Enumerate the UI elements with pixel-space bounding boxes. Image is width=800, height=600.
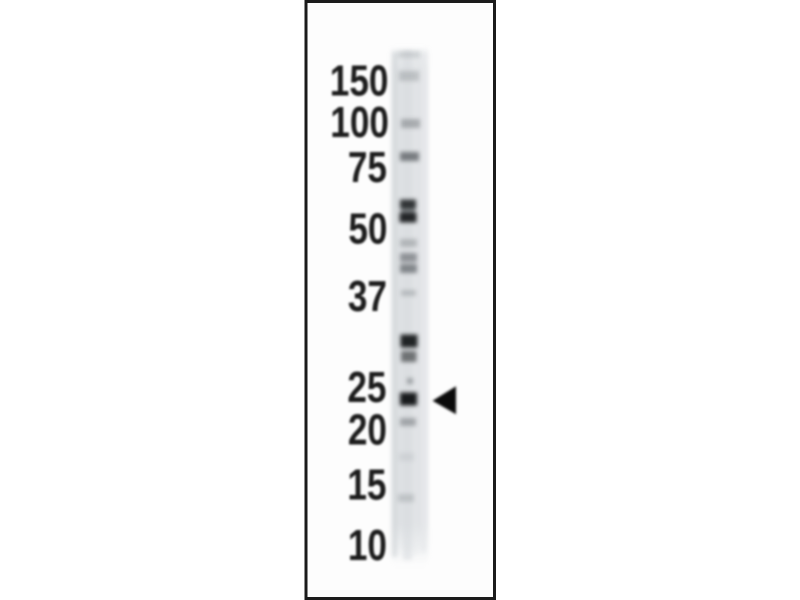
svg-text:10: 10 bbox=[348, 521, 387, 570]
svg-text:37: 37 bbox=[348, 273, 387, 322]
svg-text:100: 100 bbox=[330, 98, 389, 147]
svg-text:20: 20 bbox=[348, 406, 387, 455]
svg-text:15: 15 bbox=[347, 461, 386, 510]
svg-text:50: 50 bbox=[348, 205, 387, 254]
svg-text:75: 75 bbox=[348, 143, 387, 192]
